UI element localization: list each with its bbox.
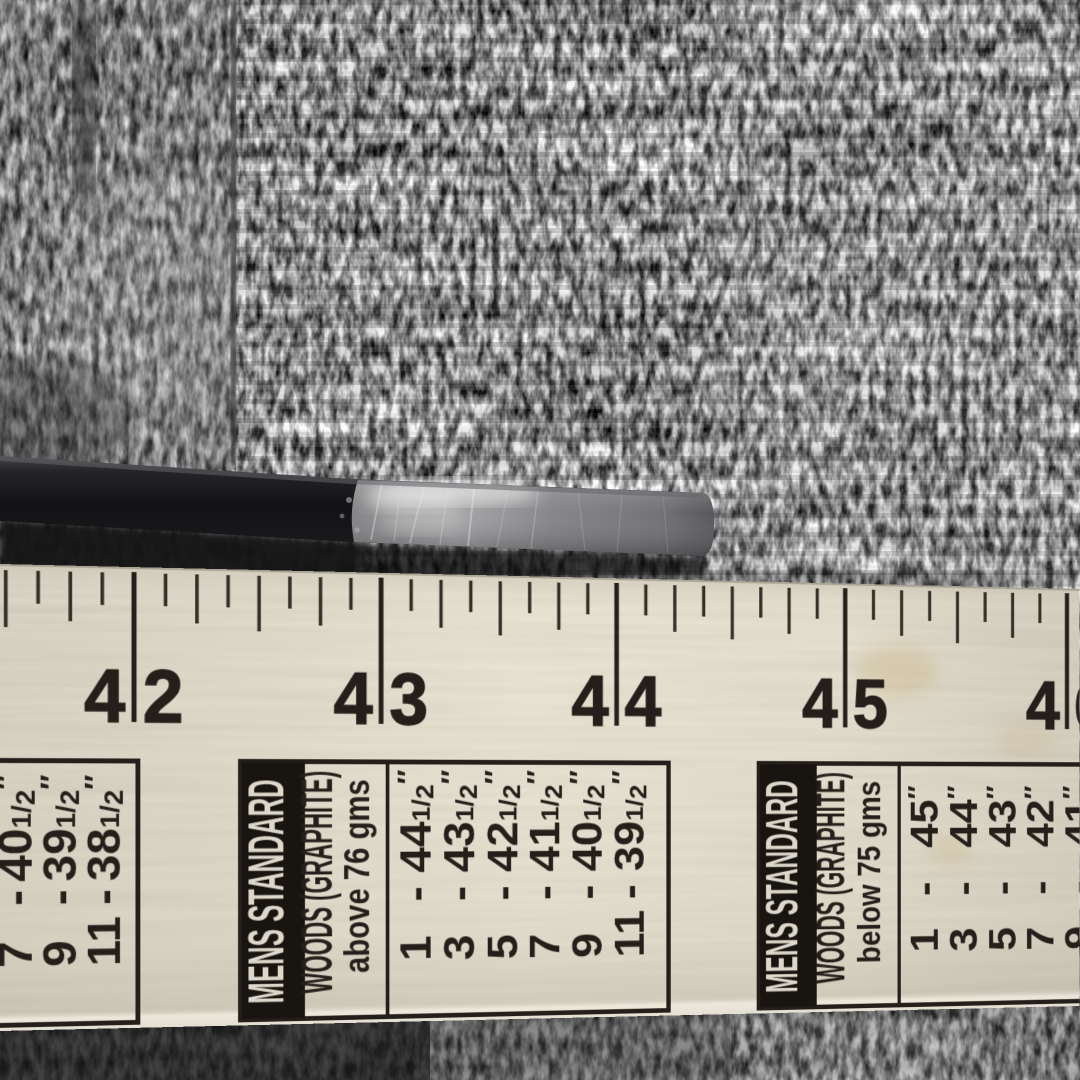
svg-text:5: 5 xyxy=(853,665,888,743)
svg-text:3: 3 xyxy=(436,934,484,960)
svg-text:-: - xyxy=(943,880,986,895)
svg-text:4: 4 xyxy=(625,661,662,741)
svg-text:-: - xyxy=(392,885,441,901)
svg-text:9: 9 xyxy=(1058,925,1079,950)
svg-text:6: 6 xyxy=(1074,668,1080,744)
svg-text:-: - xyxy=(903,881,947,896)
svg-text:4: 4 xyxy=(334,657,373,740)
svg-text:MENS STANDARD: MENS STANDARD xyxy=(238,779,295,1004)
svg-text:7: 7 xyxy=(522,933,569,959)
svg-text:below 75 gms: below 75 gms xyxy=(853,780,888,962)
svg-text:-: - xyxy=(981,880,1024,895)
svg-text:5: 5 xyxy=(981,926,1024,951)
svg-text:above 76 gms: above 76 gms xyxy=(338,779,377,973)
svg-text:MENS STANDARD: MENS STANDARD xyxy=(756,780,807,993)
svg-text:-: - xyxy=(1058,879,1079,894)
svg-text:-: - xyxy=(522,884,569,900)
svg-text:9: 9 xyxy=(565,932,612,958)
svg-text:4: 4 xyxy=(571,661,608,742)
svg-text:4: 4 xyxy=(84,654,125,739)
svg-text:-: - xyxy=(1020,880,1063,895)
svg-text:4: 4 xyxy=(1026,667,1060,744)
svg-text:WOODS (GRAPHITE): WOODS (GRAPHITE) xyxy=(808,772,854,984)
svg-text:3: 3 xyxy=(389,658,428,740)
svg-text:4: 4 xyxy=(802,664,838,743)
svg-text:3: 3 xyxy=(943,927,986,952)
svg-text:11: 11 xyxy=(79,915,131,966)
svg-text:1: 1 xyxy=(903,927,947,952)
svg-text:-: - xyxy=(79,888,131,904)
svg-text:-: - xyxy=(565,884,612,900)
svg-text:-: - xyxy=(607,884,653,899)
svg-text:41″: 41″ xyxy=(1058,785,1080,847)
svg-text:11: 11 xyxy=(607,909,653,957)
svg-text:-: - xyxy=(436,885,484,901)
svg-text:7: 7 xyxy=(1020,926,1063,951)
svg-text:WOODS (GRAPHITE): WOODS (GRAPHITE) xyxy=(291,770,343,994)
svg-text:2: 2 xyxy=(143,654,184,738)
svg-text:-: - xyxy=(479,885,527,901)
svg-text:1: 1 xyxy=(392,935,441,961)
svg-text:5: 5 xyxy=(479,933,527,959)
